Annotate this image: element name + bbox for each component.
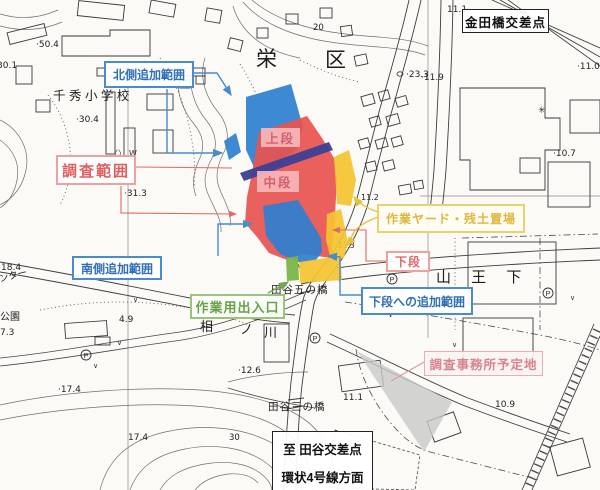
parking-icon: P <box>545 289 550 298</box>
svg-text:11.1: 11.1 <box>343 393 363 403</box>
callout-survey-range: 調査範囲 <box>56 155 136 185</box>
factory-icon: ✳ <box>538 106 546 116</box>
ward-label-ku: 区 <box>325 49 346 72</box>
sannoshita-label: 山 王 下 <box>436 269 529 286</box>
ward-label-sakae: 栄 <box>256 48 277 71</box>
callout-south-addition: 南側追加範囲 <box>72 256 162 280</box>
svg-text:·31.3: ·31.3 <box>124 189 147 199</box>
parking-icon: P <box>389 275 394 284</box>
grass-icon: ∨ <box>117 339 122 347</box>
river-label: 相 <box>200 319 213 334</box>
work-entrance-area <box>286 256 299 281</box>
south-add-leader <box>218 224 252 256</box>
callout-destination: 至 田谷交差点 環状4号線方面 <box>272 431 373 490</box>
west-small-addition-area <box>224 133 241 160</box>
scanned-survey-map: ✳ ∨ ∨ ∨ ∨ ∨ ∨ ∨ 〈〉 W P P P P ·50.4 30.1 … <box>0 0 600 490</box>
park-label-partial: 公園 <box>0 311 20 323</box>
svg-text:·11.0: ·11.0 <box>577 62 600 72</box>
upper-tier-label: 上段 <box>261 128 300 147</box>
callout-lower-tier-addition: 下段への追加範囲 <box>361 287 473 315</box>
map-canvas: ✳ ∨ ∨ ∨ ∨ ∨ ∨ ∨ 〈〉 W P P P P ·50.4 30.1 … <box>0 0 600 490</box>
work-yard-area-middle <box>326 209 348 260</box>
callout-work-entrance: 作業用出入口 <box>190 294 285 319</box>
svg-text:30.1: 30.1 <box>0 61 17 71</box>
parking-icon: P <box>312 334 317 343</box>
railway <box>522 324 600 490</box>
river-label: 川 <box>264 325 277 340</box>
svg-text:30: 30 <box>229 433 240 443</box>
callout-north-addition: 北側追加範囲 <box>104 61 194 88</box>
north-add-leader-2 <box>167 89 222 153</box>
svg-text:·10.7: ·10.7 <box>553 149 576 159</box>
svg-text:7.3: 7.3 <box>0 328 14 338</box>
svg-text:·30.4: ·30.4 <box>76 115 99 125</box>
work-yard-area-upper <box>334 150 356 206</box>
parking-icon: P <box>83 351 88 360</box>
svg-text:17.4: 17.4 <box>128 433 148 443</box>
svg-text:·17.4: ·17.4 <box>58 385 81 395</box>
svg-text:20: 20 <box>313 23 324 33</box>
svg-text:11.2: 11.2 <box>361 193 379 202</box>
destination-line2: 環状4号線方面 <box>282 467 364 486</box>
grass-icon: ∨ <box>452 341 457 349</box>
destination-line1: 至 田谷交差点 <box>283 439 361 458</box>
callout-work-yard: 作業ヤード・残土置場 <box>377 204 525 233</box>
callout-kanedabashi-intersection: 金田橋交差点 <box>462 9 549 33</box>
svg-text:4.9: 4.9 <box>119 315 134 325</box>
callout-lower-tier: 下段 <box>386 251 430 272</box>
grass-icon: ∨ <box>93 362 98 370</box>
school-label: 千 秀 小 学 校 <box>53 88 130 103</box>
svg-text:·12.6: ·12.6 <box>238 366 261 376</box>
grass-icon: ∨ <box>133 296 138 304</box>
grass-icon: ∨ <box>570 294 575 302</box>
river-label: ノ <box>240 322 253 337</box>
svg-text:·50.4: ·50.4 <box>36 40 59 50</box>
bridge-lower-label: 田谷三の橋 <box>268 400 326 413</box>
survey-leader-1 <box>136 167 232 168</box>
callout-office-site: 調査事務所予定地 <box>424 351 543 376</box>
svg-text:·11.9: ·11.9 <box>421 73 444 83</box>
svg-text:10.9: 10.9 <box>495 400 515 410</box>
middle-tier-label: 中段 <box>257 171 299 192</box>
